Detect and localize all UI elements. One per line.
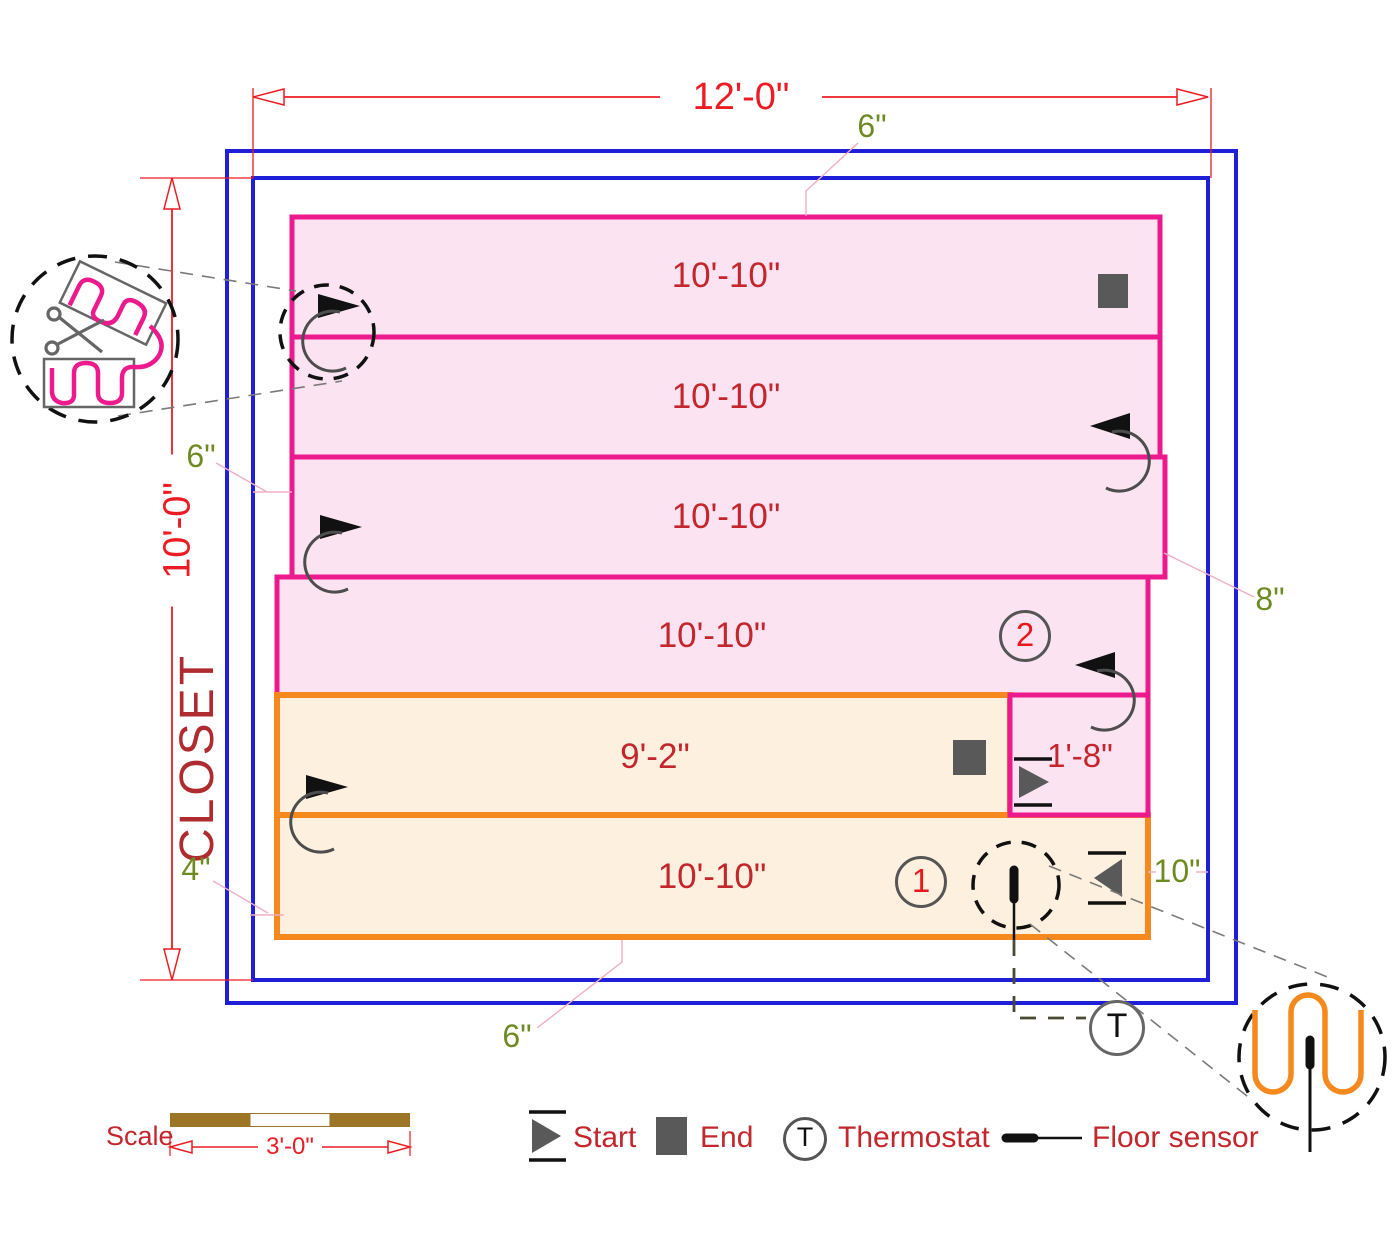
room-height-dimension: 10'-0" [157,455,200,607]
thermostat-legend-icon: T [783,1117,827,1161]
legend-start-label: Start [573,1121,673,1155]
legend-end-label: End [700,1121,780,1155]
mat-small-label: 1'-8" [1030,737,1130,775]
zone-1-badge: 1 [895,856,947,908]
scale-dimension: 3'-0" [258,1133,322,1161]
scale-label: Scale [106,1121,170,1152]
end-symbol-zone2 [1098,274,1128,308]
zone-2-badge: 2 [999,610,1051,662]
mat-row-label: 9'-2" [555,737,755,777]
clearance-left-label: 6" [171,438,231,475]
start-icon [529,1112,566,1160]
thermostat-symbol: T [1089,1000,1145,1056]
room-name-label: CLOSET [170,633,224,883]
clearance-right-label: 8" [1240,581,1300,618]
legend-thermostat-label: Thermostat [838,1121,1018,1155]
heating-mat-floor-plan: 12'-0" 10'-0" CLOSET 6" 6" 4" 8" 10" 6" … [0,0,1400,1235]
room-width-dimension: 12'-0" [660,76,822,119]
cable-upper [69,276,148,337]
scale-bar [170,1113,410,1127]
mat-row-label: 10'-10" [612,857,812,897]
mat-row-label: 10'-10" [626,497,826,537]
mat-row-label: 10'-10" [612,616,812,656]
clearance-bottom-left-label: 4" [166,851,226,888]
clearance-bottom-label: 6" [487,1018,547,1055]
mat-rows [277,217,1165,937]
end-symbol-zone1 [953,740,986,775]
mat-row-label: 10'-10" [626,377,826,417]
mat-cut-detail [12,256,178,422]
legend-floor-sensor-label: Floor sensor [1092,1121,1292,1155]
clearance-sensor-right-label: 10" [1146,853,1208,890]
mat-row-label: 10'-10" [626,256,826,296]
clearance-top-label: 6" [842,108,902,145]
